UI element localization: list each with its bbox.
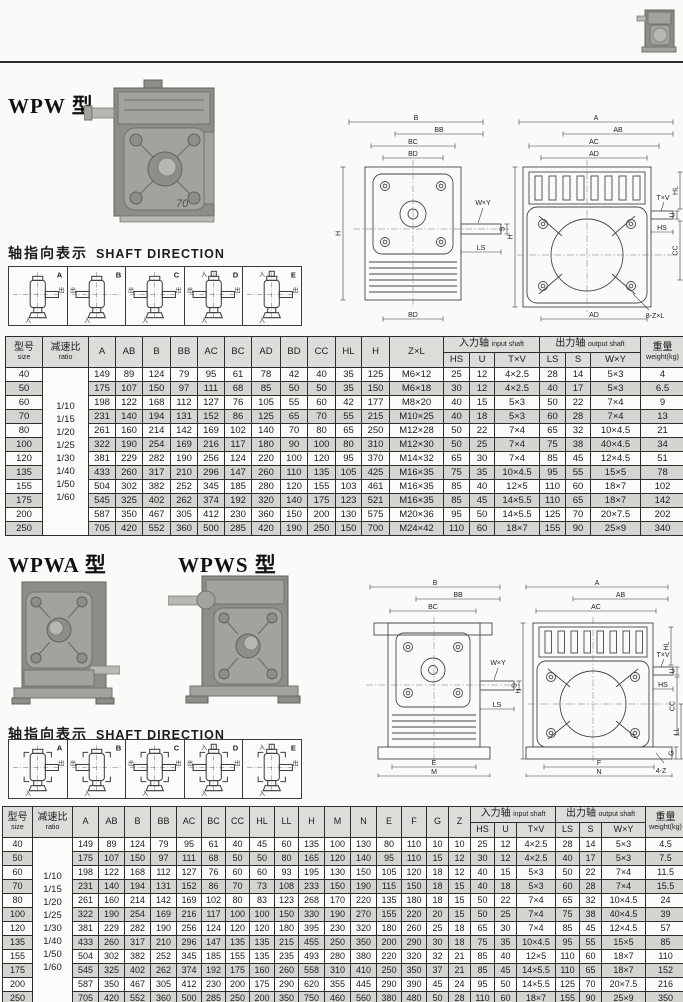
value-cell: 250 [325, 936, 351, 950]
value-cell: 60 [470, 522, 495, 536]
dim-label: 入 [25, 318, 31, 325]
shaft-column-header: T×V [517, 823, 556, 838]
value-cell: 85 [556, 922, 580, 936]
value-cell: 25×9 [602, 992, 646, 1002]
value-cell: 587 [89, 508, 116, 522]
value-cell: M6×12 [390, 368, 444, 382]
value-cell: 30 [495, 922, 517, 936]
size-cell: 175 [3, 964, 33, 978]
value-cell: 5×3 [602, 838, 646, 852]
value-cell: 250 [377, 964, 402, 978]
value-cell: 7×4 [602, 880, 646, 894]
value-cell: 39 [646, 908, 683, 922]
value-cell: 395 [299, 922, 325, 936]
value-cell: 127 [177, 866, 202, 880]
input-shaft-group-header: 入力轴 input shaft [471, 807, 556, 823]
dim-label: H [336, 231, 343, 236]
wpw-product-photo: 70 [84, 72, 236, 234]
dim-label: BD [408, 151, 418, 158]
value-cell: 14×5.5 [517, 964, 556, 978]
value-cell: M16×35 [390, 466, 444, 480]
shaft-direction-label-1: 轴指向表示SHAFT DIRECTION [8, 243, 225, 263]
value-cell: 4.5 [646, 838, 683, 852]
size-cell: 155 [3, 950, 33, 964]
value-cell: 95 [540, 466, 566, 480]
value-cell: 75 [540, 438, 566, 452]
value-cell: 105 [336, 466, 362, 480]
dim-label: BD [408, 312, 418, 319]
dim-label: CC [673, 245, 680, 255]
value-cell: 79 [151, 838, 177, 852]
value-cell: 60 [308, 396, 336, 410]
value-cell: 30 [444, 382, 470, 396]
value-cell: 425 [362, 466, 390, 480]
value-cell: 14 [580, 838, 602, 852]
value-cell: 5×3 [602, 852, 646, 866]
dim-label: AB [613, 127, 623, 134]
value-cell: 412 [198, 508, 225, 522]
value-cell: 14×5.5 [517, 978, 556, 992]
value-cell: 32 [580, 894, 602, 908]
value-cell: 330 [299, 908, 325, 922]
value-cell: 107 [116, 382, 143, 396]
value-cell: 38 [580, 908, 602, 922]
value-cell: 250 [308, 522, 336, 536]
value-cell: 150 [325, 880, 351, 894]
value-cell: 85 [252, 382, 281, 396]
value-cell: 560 [351, 992, 377, 1002]
value-cell: 705 [73, 992, 99, 1002]
value-cell: 50 [471, 894, 495, 908]
value-cell: 200 [250, 992, 275, 1002]
value-cell: 150 [402, 880, 427, 894]
shaft-direction-box-E: 出入入E [242, 739, 302, 799]
value-cell: 85 [471, 950, 495, 964]
value-cell: 521 [362, 494, 390, 508]
value-cell: 433 [89, 466, 116, 480]
value-cell: 175 [250, 978, 275, 992]
value-cell: 7×4 [517, 894, 556, 908]
dim-column-header: BB [171, 337, 198, 368]
value-cell: 18×7 [591, 494, 641, 508]
value-cell: 50 [540, 396, 566, 410]
value-cell: 15 [449, 894, 471, 908]
value-cell: 10×4.5 [517, 936, 556, 950]
header-rule [0, 61, 683, 63]
value-cell: 103 [336, 480, 362, 494]
shaft-column-header: HS [444, 353, 470, 368]
dim-column-header: B [125, 807, 151, 838]
value-cell: 60 [250, 866, 275, 880]
value-cell: 17 [566, 382, 591, 396]
value-cell: 380 [377, 992, 402, 1002]
value-cell: 14 [566, 368, 591, 382]
shaft-direction-box-B: 出入B [67, 266, 127, 326]
dim-label: HS [658, 682, 668, 689]
value-cell: 12×4.5 [602, 922, 646, 936]
value-cell: 80 [275, 852, 299, 866]
value-cell: 216 [177, 908, 202, 922]
value-cell: 345 [198, 480, 225, 494]
shaft-direction-box-A: 出入A [8, 266, 68, 326]
size-cell: 100 [6, 438, 43, 452]
size-cell: 80 [3, 894, 33, 908]
value-cell: 7×4 [495, 424, 540, 438]
value-cell: 93 [275, 866, 299, 880]
dim-label: AC [591, 604, 601, 611]
value-cell: 50 [250, 852, 275, 866]
value-cell: 231 [73, 880, 99, 894]
value-cell: 305 [151, 978, 177, 992]
value-cell: 190 [325, 908, 351, 922]
value-cell: 198 [89, 396, 116, 410]
value-cell: 350 [99, 978, 125, 992]
table-row-size-135: 135433260317210296147260110135105425M16×… [6, 466, 683, 480]
value-cell: 97 [151, 852, 177, 866]
dim-column-header: AC [198, 337, 225, 368]
value-cell: 302 [99, 950, 125, 964]
value-cell: 252 [151, 950, 177, 964]
size-cell: 135 [6, 466, 43, 480]
wpw-title: WPW 型 [8, 90, 94, 120]
value-cell: 200 [226, 978, 250, 992]
value-cell: 260 [402, 922, 427, 936]
value-cell: 210 [171, 466, 198, 480]
dim-column-header: AB [99, 807, 125, 838]
value-cell: 504 [73, 950, 99, 964]
value-cell: 149 [73, 838, 99, 852]
value-cell: 261 [73, 894, 99, 908]
value-cell: 282 [143, 452, 171, 466]
value-cell: 60 [556, 880, 580, 894]
value-cell: 45 [427, 978, 449, 992]
value-cell: 177 [362, 396, 390, 410]
value-cell: 350 [351, 936, 377, 950]
value-cell: 18 [427, 894, 449, 908]
shaft-column-header: W×Y [602, 823, 646, 838]
value-cell: 17 [580, 852, 602, 866]
table-row-size-40: 401/101/151/201/251/301/401/501/60149891… [3, 838, 683, 852]
value-cell: 100 [325, 838, 351, 852]
value-cell: 7×4 [602, 866, 646, 880]
value-cell: 5×3 [591, 368, 641, 382]
value-cell: 185 [202, 950, 226, 964]
value-cell: 620 [299, 978, 325, 992]
value-cell: 73 [250, 880, 275, 894]
dim-label: 入 [259, 744, 265, 751]
input-shaft-group-header: 入力轴 input shaft [444, 337, 540, 353]
value-cell: 390 [402, 978, 427, 992]
value-cell: 18×7 [591, 480, 641, 494]
value-cell: 80 [226, 894, 250, 908]
value-cell: 4×2.5 [517, 852, 556, 866]
size-cell: 50 [3, 852, 33, 866]
dim-column-header: CC [308, 337, 336, 368]
size-cell: 250 [6, 522, 43, 536]
value-cell: 78 [641, 466, 683, 480]
dim-column-header: M [325, 807, 351, 838]
value-cell: 10 [449, 838, 471, 852]
value-cell: 310 [362, 438, 390, 452]
shaft-direction-strip-2: 出入A出入B出出入C出出入入D出入入E [8, 739, 302, 799]
value-cell: 45 [566, 452, 591, 466]
value-cell: 142 [151, 894, 177, 908]
value-cell: 168 [125, 866, 151, 880]
dim-label: HL [673, 186, 680, 195]
value-cell: 216 [646, 978, 683, 992]
value-cell: 190 [151, 922, 177, 936]
value-cell: 260 [275, 964, 299, 978]
value-cell: M6×18 [390, 382, 444, 396]
value-cell: 135 [250, 950, 275, 964]
value-cell: 15 [495, 866, 517, 880]
dim-column-header: LL [275, 807, 299, 838]
dim-column-header: F [402, 807, 427, 838]
dim-column-header: B [143, 337, 171, 368]
dim-column-header: AC [177, 807, 202, 838]
value-cell: 110 [402, 852, 427, 866]
value-cell: 76 [225, 396, 252, 410]
size-cell: 70 [3, 880, 33, 894]
value-cell: 410 [351, 964, 377, 978]
value-cell: 165 [299, 852, 325, 866]
table-row-size-100: 1003221902541692161171001001503301902701… [3, 908, 683, 922]
dim-label: D [232, 743, 238, 752]
value-cell: 61 [225, 368, 252, 382]
shaft-direction-box-C: 出出入C [125, 739, 185, 799]
value-cell: 317 [143, 466, 171, 480]
dim-column-header: AB [116, 337, 143, 368]
value-cell: 100 [250, 908, 275, 922]
value-cell: 40 [444, 410, 470, 424]
shaft-column-header: U [470, 353, 495, 368]
value-cell: 117 [225, 438, 252, 452]
value-cell: 12×5 [495, 480, 540, 494]
value-cell: 160 [116, 424, 143, 438]
value-cell: 254 [125, 908, 151, 922]
value-cell: 420 [116, 522, 143, 536]
value-cell: 5×3 [517, 866, 556, 880]
value-cell: 5×3 [591, 382, 641, 396]
dim-label: AC [589, 139, 599, 146]
value-cell: 320 [402, 950, 427, 964]
value-cell: 110 [646, 950, 683, 964]
dim-label: U [670, 212, 677, 217]
value-cell: 168 [143, 396, 171, 410]
value-cell: 105 [377, 866, 402, 880]
value-cell: 68 [202, 852, 226, 866]
value-cell: 68 [225, 382, 252, 396]
table-row-size-100: 1003221902541692161171809010080310M12×30… [6, 438, 683, 452]
value-cell: 320 [351, 922, 377, 936]
value-cell: 15.5 [646, 880, 683, 894]
value-cell: 50 [471, 908, 495, 922]
value-cell: 256 [177, 922, 202, 936]
value-cell: 10×4.5 [602, 894, 646, 908]
value-cell: 345 [177, 950, 202, 964]
value-cell: 150 [336, 522, 362, 536]
value-cell: 350 [646, 992, 683, 1002]
value-cell: 200 [377, 936, 402, 950]
value-cell: 102 [641, 480, 683, 494]
value-cell: 124 [202, 922, 226, 936]
value-cell: 140 [99, 880, 125, 894]
shaft-direction-label-en: SHAFT DIRECTION [96, 247, 225, 261]
table-row-size-70: 7023114019413115286125657055215M10×25401… [6, 410, 683, 424]
value-cell: 40 [226, 838, 250, 852]
value-cell: 500 [177, 992, 202, 1002]
value-cell: 40 [495, 950, 517, 964]
ratio-cell: 1/101/151/201/251/301/401/501/60 [43, 368, 89, 536]
value-cell: 152 [177, 880, 202, 894]
value-cell: 110 [540, 494, 566, 508]
value-cell: 22 [495, 894, 517, 908]
size-cell: 60 [6, 396, 43, 410]
value-cell: 95 [198, 368, 225, 382]
shaft-column-header: HS [471, 823, 495, 838]
value-cell: 322 [73, 908, 99, 922]
value-cell: 169 [177, 894, 202, 908]
dim-label: LS [477, 245, 486, 252]
value-cell: 30 [470, 452, 495, 466]
value-cell: 120 [226, 922, 250, 936]
value-cell: 110 [402, 838, 427, 852]
value-cell: 85 [444, 480, 470, 494]
value-cell: 85 [471, 964, 495, 978]
value-cell: 40 [471, 880, 495, 894]
dim-label: W×Y [490, 660, 506, 667]
value-cell: 25 [444, 368, 470, 382]
value-cell: 65 [336, 424, 362, 438]
value-cell: 194 [125, 880, 151, 894]
value-cell: 4×2.5 [495, 368, 540, 382]
value-cell: 360 [151, 992, 177, 1002]
dim-label: BB [453, 592, 463, 599]
value-cell: 185 [225, 480, 252, 494]
value-cell: 21 [449, 964, 471, 978]
value-cell: 4 [641, 368, 683, 382]
value-cell: 100 [308, 438, 336, 452]
dim-column-header: H [362, 337, 390, 368]
value-cell: 380 [351, 950, 377, 964]
value-cell: 140 [252, 424, 281, 438]
value-cell: M8×20 [390, 396, 444, 410]
value-cell: 20×7.5 [602, 978, 646, 992]
value-cell: 89 [99, 838, 125, 852]
value-cell: 35 [495, 936, 517, 950]
dim-label: D [232, 270, 238, 279]
value-cell: 120 [250, 922, 275, 936]
dim-label: A [594, 115, 599, 122]
value-cell: 95 [177, 838, 202, 852]
value-cell: 142 [641, 494, 683, 508]
value-cell: 493 [299, 950, 325, 964]
value-cell: 55 [281, 396, 308, 410]
dim-column-header: BC [225, 337, 252, 368]
value-cell: 65 [281, 410, 308, 424]
value-cell: 198 [73, 866, 99, 880]
value-cell: 192 [202, 964, 226, 978]
value-cell: 229 [116, 452, 143, 466]
value-cell: 140 [351, 852, 377, 866]
value-cell: 40 [444, 396, 470, 410]
value-cell: 322 [89, 438, 116, 452]
dim-column-header: H [299, 807, 325, 838]
value-cell: 545 [73, 964, 99, 978]
value-cell: 149 [89, 368, 116, 382]
value-cell: 350 [402, 964, 427, 978]
size-cell: 135 [3, 936, 33, 950]
dim-label: C [174, 743, 180, 752]
value-cell: 55 [336, 410, 362, 424]
value-cell: 12 [470, 382, 495, 396]
value-cell: 124 [143, 368, 171, 382]
dim-label: 出 [175, 759, 181, 767]
value-cell: 18 [470, 410, 495, 424]
value-cell: 25×9 [591, 522, 641, 536]
value-cell: 70 [281, 424, 308, 438]
value-cell: 50 [470, 508, 495, 522]
value-cell: 120 [281, 480, 308, 494]
value-cell: 60 [495, 992, 517, 1002]
dim-label: 入 [259, 271, 265, 278]
value-cell: 180 [402, 894, 427, 908]
value-cell: 150 [281, 508, 308, 522]
value-cell: 150 [275, 908, 299, 922]
value-cell: 750 [299, 992, 325, 1002]
value-cell: 152 [198, 410, 225, 424]
value-cell: 100 [226, 908, 250, 922]
dim-label: LS [493, 702, 502, 709]
value-cell: 467 [143, 508, 171, 522]
value-cell: 4×2.5 [495, 382, 540, 396]
value-cell: 350 [275, 992, 299, 1002]
dim-column-header: N [351, 807, 377, 838]
ratio-column-header: 减速比ratio [43, 337, 89, 368]
dim-label: 出 [187, 759, 193, 767]
value-cell: 230 [325, 922, 351, 936]
dim-column-header: BB [151, 807, 177, 838]
value-cell: 220 [402, 908, 427, 922]
value-cell: 370 [362, 452, 390, 466]
value-cell: 192 [225, 494, 252, 508]
wpws-product-photo [168, 570, 305, 708]
dim-label: BC [408, 139, 418, 146]
value-cell: 24 [449, 978, 471, 992]
dim-label: N [596, 769, 601, 776]
value-cell: 97 [171, 382, 198, 396]
value-cell: 122 [99, 866, 125, 880]
wpwa-wpws-dimension-table: 型号size减速比ratioAABBBBACBCCCHLLLHMNEFGZ入力轴… [2, 806, 683, 1002]
size-cell: 200 [3, 978, 33, 992]
output-shaft-group-header: 出力轴 output shaft [556, 807, 646, 823]
table-row-size-80: 80261160214142169102140708065250M12×2850… [6, 424, 683, 438]
dim-label: S [500, 226, 507, 231]
value-cell: 175 [226, 964, 250, 978]
shaft-direction-box-A: 出入A [8, 739, 68, 799]
dim-label: 入 [25, 791, 31, 798]
value-cell: 260 [99, 936, 125, 950]
dim-label: 出 [128, 759, 134, 767]
value-cell: 215 [362, 410, 390, 424]
value-cell: 18 [495, 880, 517, 894]
dim-label: 出 [70, 759, 76, 767]
dim-label: A [595, 580, 600, 587]
value-cell: 317 [125, 936, 151, 950]
shaft-column-header: S [580, 823, 602, 838]
value-cell: 35 [336, 368, 362, 382]
wpw-dimension-drawing: BBBBCBDHBDW×YLSSAABACADHADT×VUHLHSCC8-Z×… [333, 112, 683, 330]
